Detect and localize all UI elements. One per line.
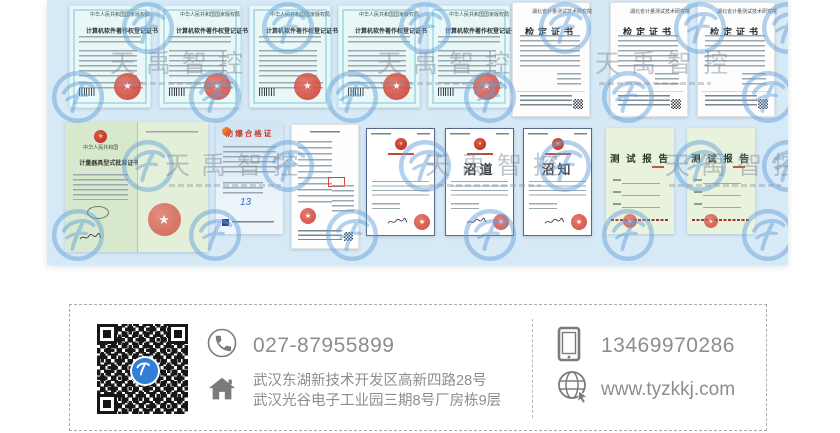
footer-contact-box: 027-87955899 武汉东湖新技术开发区高新四路28号 武汉光谷电子工业园…	[69, 304, 767, 431]
home-icon	[207, 374, 237, 409]
certificate-header: 湖北省计量测试技术研究院	[532, 7, 570, 15]
barcode	[79, 88, 95, 96]
software-copyright-certificate: 中华人民共和国国家版权局 计算机软件著作权登记证书 ★	[338, 5, 420, 108]
booklet-left-page: ★ 中华人民共和国 计量器具型式批准证书	[65, 122, 138, 252]
red-seal: ★	[414, 214, 430, 230]
cpa-mark	[87, 206, 109, 219]
certificate-header: 中华人民共和国国家版权局	[90, 10, 130, 18]
verification-certificate: 湖北省计量测试技术研究院 检定证书	[610, 2, 688, 117]
verification-certificate: 湖北省计量测试技术研究院 检定证书	[697, 2, 775, 117]
national-emblem: ★	[94, 130, 107, 143]
red-seal: ★	[383, 73, 410, 100]
address-line-1: 武汉东湖新技术开发区高新四路28号	[253, 369, 487, 390]
software-copyright-certificate: 中华人民共和国国家版权局 计算机软件著作权登记证书 ★	[159, 5, 241, 108]
qr-position-marker	[97, 324, 117, 344]
red-seal: ★	[571, 214, 587, 230]
software-copyright-certificate: 中华人民共和国国家版权局 计算机软件著作权登记证书 ★	[428, 5, 510, 108]
notice-certificate: ★ 沼道 ★	[445, 128, 514, 236]
page: 中华人民共和国国家版权局 计算机软件著作权登记证书 ★ 中华人民共和国国家版权局…	[0, 0, 840, 433]
red-seal: ★	[148, 203, 181, 236]
notice-certificate: ★ 沼知 ★	[523, 128, 592, 236]
footer-divider	[532, 319, 533, 418]
phone-number: 027-87955899	[253, 334, 394, 358]
red-seal: ★	[204, 73, 231, 100]
red-seal: ★	[294, 73, 321, 100]
signature	[464, 217, 488, 226]
red-seal: ★	[300, 208, 316, 224]
software-copyright-certificate: 中华人民共和国国家版权局 计算机软件著作权登记证书 ★	[69, 5, 151, 108]
ma-mark	[222, 127, 231, 136]
national-emblem: ★	[395, 138, 407, 150]
red-seal: ★	[473, 73, 500, 100]
pattern-approval-certificate: ★ 中华人民共和国 计量器具型式批准证书 ★	[65, 122, 208, 252]
qr-stamp	[573, 99, 583, 109]
certificate-title: 测 试 报 告	[606, 151, 674, 165]
red-seal: ★	[114, 73, 141, 100]
qr-stamp	[344, 232, 353, 241]
qr-center-logo	[130, 356, 160, 386]
signature	[385, 217, 409, 226]
address-line-2: 武汉光谷电子工业园三期8号厂房栋9层	[253, 389, 501, 410]
mobile-icon	[557, 326, 581, 367]
calibration-certificate: ★	[291, 124, 359, 249]
software-copyright-certificate: 中华人民共和国国家版权局 计算机软件著作权登记证书 ★	[249, 5, 331, 108]
red-seal: ★	[623, 214, 637, 228]
phone-icon	[206, 327, 238, 364]
test-report-certificate: 测 试 报 告 ★	[606, 128, 674, 234]
certificate-big-text: 沼道	[446, 159, 513, 178]
notice-certificate: ★ ★	[366, 128, 435, 236]
verification-certificate: 湖北省计量测试技术研究院 检定证书	[512, 2, 590, 117]
watermark-logo	[760, 138, 788, 194]
certificates-panel: 中华人民共和国国家版权局 计算机软件著作权登记证书 ★ 中华人民共和国国家版权局…	[47, 0, 788, 265]
globe-icon	[553, 367, 593, 412]
test-report-certificate: 测 试 报 告 ★	[687, 128, 755, 234]
certificate-title: 计算机软件著作权登记证书	[86, 26, 134, 35]
signature	[542, 217, 566, 226]
explosion-proof-certificate: 防爆合格证 13	[216, 122, 283, 234]
red-seal: ★	[493, 214, 509, 230]
red-seal: ★	[704, 214, 718, 228]
certificate-big-text: 沼知	[524, 159, 591, 178]
website-link[interactable]: www.tyzkkj.com	[601, 379, 735, 401]
mobile-number: 13469970286	[601, 334, 735, 358]
lab-logo	[222, 219, 229, 226]
qr-position-marker	[97, 394, 117, 414]
qr-position-marker	[168, 324, 188, 344]
national-emblem: ★	[552, 138, 564, 150]
handwritten-number: 13	[240, 197, 251, 208]
national-emblem: ★	[474, 138, 486, 150]
certificate-title: 计量器具型式批准证书	[79, 158, 122, 167]
inspection-center-line	[611, 219, 668, 222]
qr-code	[97, 324, 188, 414]
signature	[77, 232, 103, 242]
country-label: 中华人民共和国	[83, 143, 119, 151]
booklet-right-page: ★	[138, 122, 209, 252]
